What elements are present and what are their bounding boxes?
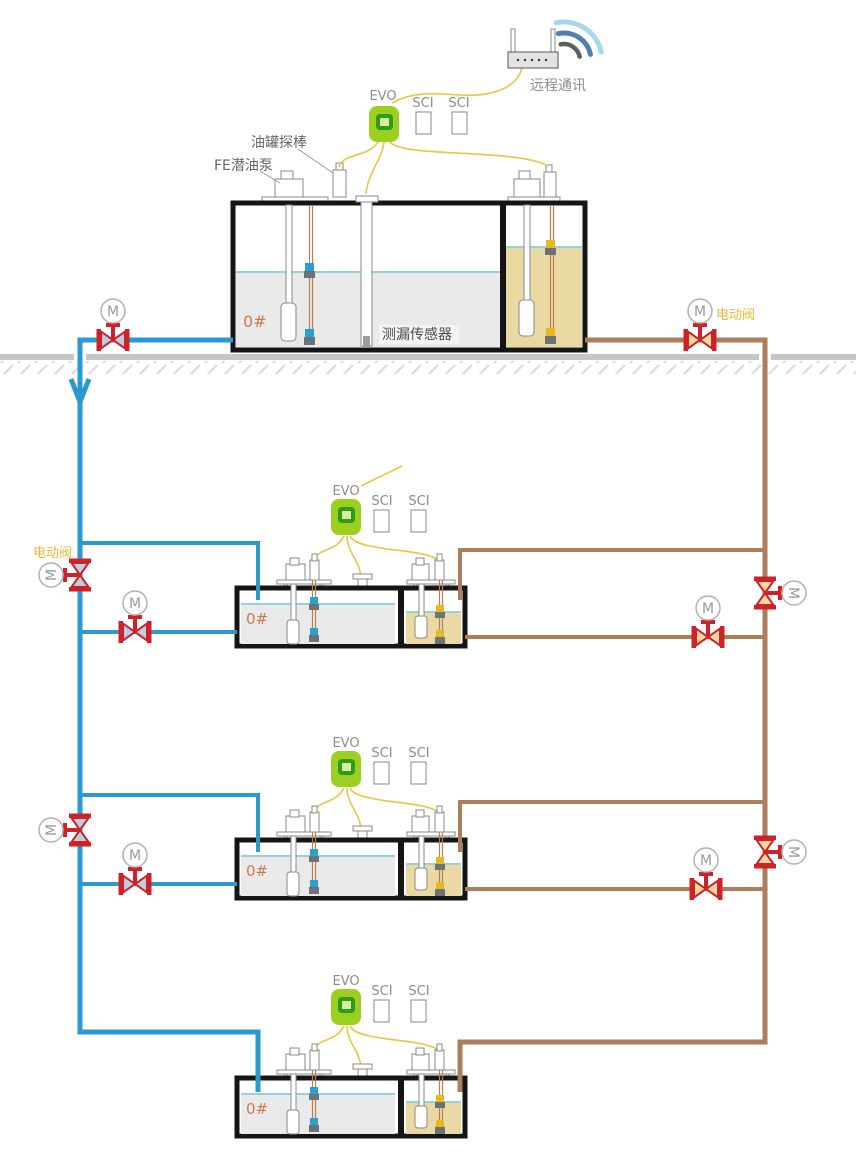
tank-station-4 bbox=[237, 974, 465, 1136]
motor-indicator bbox=[39, 563, 63, 587]
tank-station-2 bbox=[237, 484, 465, 646]
remote-comm-label: 远程通讯 bbox=[530, 78, 586, 94]
motor-valve bbox=[119, 615, 152, 643]
tank-divider bbox=[500, 205, 506, 348]
motor-indicator bbox=[39, 818, 63, 842]
ground-hatch bbox=[0, 361, 856, 374]
motor-indicator bbox=[688, 299, 712, 323]
motor-valve bbox=[754, 577, 782, 610]
motor-indicator bbox=[101, 299, 125, 323]
antenna bbox=[511, 29, 515, 52]
motor-indicator bbox=[123, 843, 147, 867]
tank-probe-callout: 油罐探棒 bbox=[251, 135, 307, 151]
gasoline-main-pipe bbox=[460, 340, 765, 1092]
sci-module bbox=[452, 112, 467, 134]
motor-valve bbox=[692, 620, 725, 648]
pump-head bbox=[275, 179, 303, 197]
motor-valve bbox=[63, 559, 91, 592]
gasoline-liquid bbox=[506, 247, 582, 347]
tank-station-3 bbox=[237, 736, 465, 898]
motor-valve bbox=[63, 814, 91, 847]
motor-valve bbox=[690, 872, 723, 900]
main-tank-station: 0# 测漏传感器 油罐探棒 FE潜油泵 EVO bbox=[214, 68, 585, 350]
ground-line bbox=[0, 354, 856, 374]
fuel-grade-label: 0# bbox=[243, 312, 267, 331]
motor-indicator bbox=[782, 581, 806, 605]
loose-wire bbox=[361, 466, 402, 486]
leak-sensor-label: 测漏传感器 bbox=[382, 326, 452, 343]
motor-indicator bbox=[782, 840, 806, 864]
sci-module bbox=[416, 112, 431, 134]
wellhead-fittings bbox=[262, 163, 560, 206]
antenna bbox=[551, 29, 555, 52]
motor-indicator bbox=[696, 596, 720, 620]
diagram-canvas: M EVO SCI SCI bbox=[0, 0, 856, 1154]
callout-leader bbox=[298, 149, 333, 173]
motor-valve bbox=[754, 836, 782, 869]
diesel-branch-pipes bbox=[80, 543, 258, 884]
evo-label: EVO bbox=[369, 89, 396, 104]
remote-comm-router: 远程通讯 bbox=[508, 15, 601, 94]
fuel-station-diagram: M EVO SCI SCI bbox=[0, 0, 856, 1154]
motor-valve bbox=[97, 323, 130, 351]
diesel-main-pipe bbox=[80, 340, 258, 1092]
wifi-signal-icon bbox=[556, 15, 601, 60]
gasoline-piping bbox=[460, 340, 765, 1092]
sci-label: SCI bbox=[412, 96, 433, 111]
electric-valve-label: 电动阀 bbox=[33, 546, 72, 561]
motor-valve bbox=[684, 323, 717, 351]
probe-head bbox=[544, 172, 556, 197]
motor-valve bbox=[119, 867, 152, 895]
probe-head bbox=[333, 170, 346, 197]
fe-pump-callout: FE潜油泵 bbox=[214, 158, 273, 174]
motor-indicator bbox=[123, 591, 147, 615]
electric-valve-label: 电动阀 bbox=[716, 308, 755, 323]
motor-indicator bbox=[694, 848, 718, 872]
evo-screen bbox=[380, 118, 389, 126]
pump-head bbox=[514, 179, 540, 197]
gasoline-branch-pipes bbox=[460, 550, 765, 889]
diesel-piping bbox=[71, 340, 258, 1092]
sci-label: SCI bbox=[448, 96, 469, 111]
